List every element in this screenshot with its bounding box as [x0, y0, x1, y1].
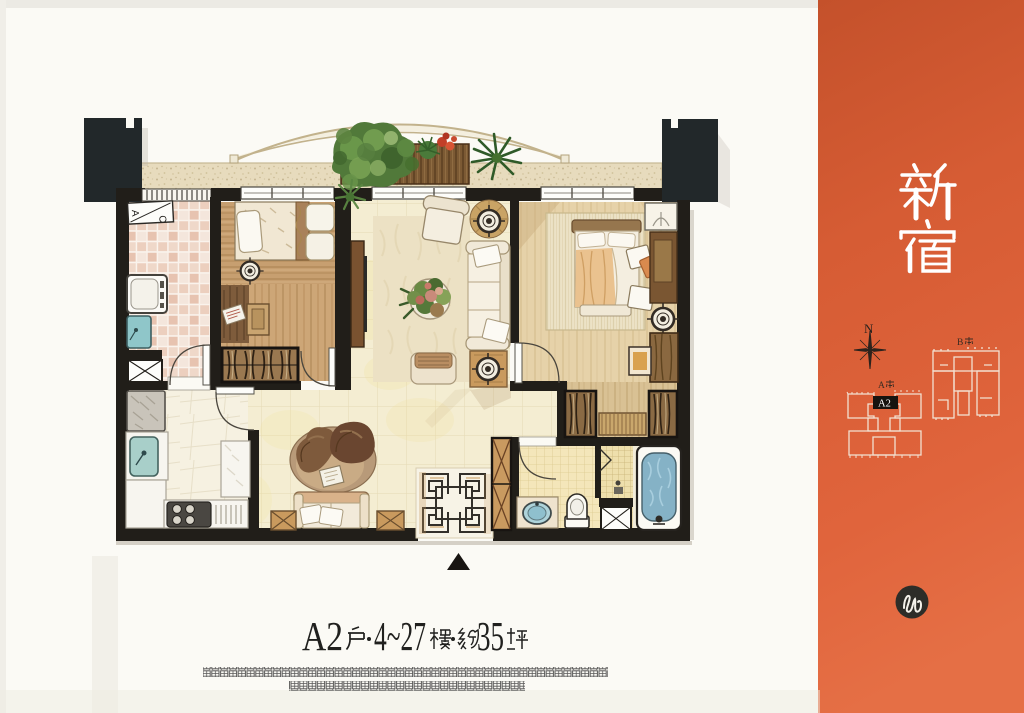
svg-text:A2: A2 [302, 613, 343, 659]
svg-text:A: A [129, 210, 140, 218]
svg-text:A: A [878, 381, 885, 391]
svg-text:N: N [864, 321, 874, 336]
svg-text:C: C [156, 215, 167, 223]
svg-text:4~27: 4~27 [374, 613, 426, 659]
svg-text:35: 35 [477, 613, 504, 659]
svg-text:A2: A2 [878, 399, 891, 410]
svg-text:B: B [957, 338, 963, 348]
